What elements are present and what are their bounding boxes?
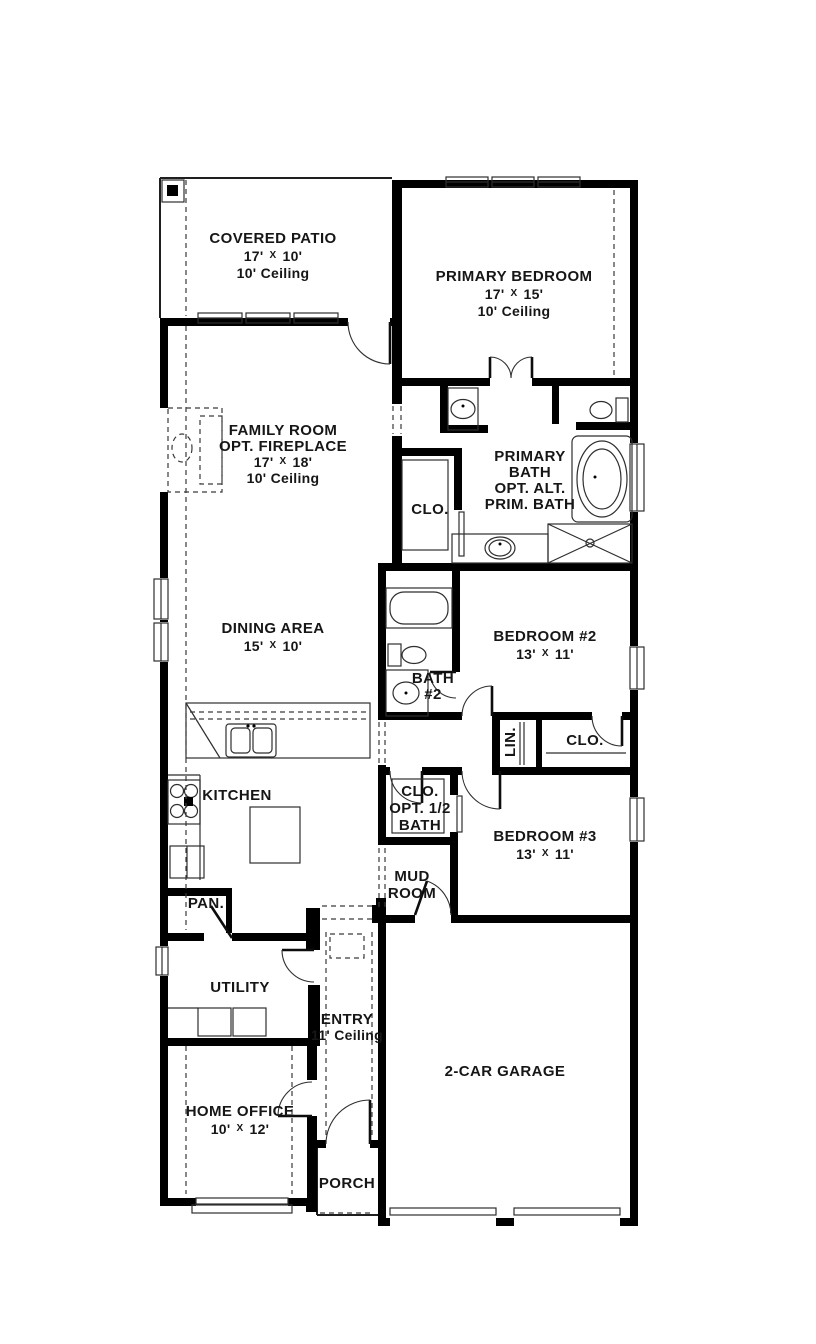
label-opt-half-bath-3: BATH xyxy=(399,817,441,834)
label-covered-patio-dims: 17'X10' xyxy=(244,248,303,264)
garage-door xyxy=(390,1208,496,1215)
patio-door-swing xyxy=(348,322,390,364)
utility-door-swing xyxy=(282,950,314,982)
label-bath2-2: #2 xyxy=(424,686,442,703)
garden-tub-icon xyxy=(572,436,632,522)
shower-icon xyxy=(548,524,632,563)
bedroom3-closet-pass-door xyxy=(457,796,462,832)
toilet-icon xyxy=(388,644,426,666)
label-primary-bath-2: BATH xyxy=(509,464,551,481)
label-home-office-dims: 10'X12' xyxy=(211,1121,270,1137)
floor-plan-canvas: COVERED PATIO 17'X10' 10' Ceiling PRIMAR… xyxy=(0,0,816,1344)
label-covered-patio: COVERED PATIO xyxy=(209,230,336,247)
bedroom2-door-swing xyxy=(462,686,492,716)
stove-icon xyxy=(168,780,200,824)
label-opt-half-bath-1: CLO. xyxy=(401,783,438,800)
patio-outline xyxy=(160,178,392,318)
label-mud-room-1: MUD xyxy=(394,868,429,885)
label-family-room-ceiling: 10' Ceiling xyxy=(247,470,320,486)
label-primary-closet: CLO. xyxy=(411,501,448,518)
label-bedroom2-dims: 13'X11' xyxy=(516,646,574,662)
kitchen-counter xyxy=(186,703,370,758)
label-kitchen: KITCHEN xyxy=(202,787,271,804)
label-primary-bedroom-ceiling: 10' Ceiling xyxy=(478,303,551,319)
label-linen: LIN. xyxy=(502,727,519,757)
refrigerator-icon xyxy=(170,846,204,878)
garage-door xyxy=(514,1208,620,1215)
bathtub-icon xyxy=(386,588,452,628)
label-garage: 2-CAR GARAGE xyxy=(445,1063,566,1080)
label-family-room-option: OPT. FIREPLACE xyxy=(219,438,347,455)
label-primary-bedroom-dims: 17'X15' xyxy=(485,286,544,302)
label-closet2: CLO. xyxy=(566,732,603,749)
label-bedroom3: BEDROOM #3 xyxy=(493,828,596,845)
label-primary-bath-3: OPT. ALT. xyxy=(494,480,565,497)
label-dining-area-dims: 15'X10' xyxy=(244,638,303,654)
label-entry-ceiling: 11' Ceiling xyxy=(311,1027,383,1043)
primary-double-door-swing xyxy=(490,357,532,378)
label-porch: PORCH xyxy=(319,1175,375,1192)
sink-icon xyxy=(452,534,548,563)
toilet-icon xyxy=(590,398,628,422)
label-family-room: FAMILY ROOM xyxy=(229,422,338,439)
closet-shelf xyxy=(520,722,524,765)
label-primary-bedroom: PRIMARY BEDROOM xyxy=(436,268,593,285)
label-family-room-dims: 17'X18' xyxy=(254,454,313,470)
sink-icon xyxy=(448,388,478,430)
label-entry: ENTRY xyxy=(321,1011,373,1028)
label-dining-area: DINING AREA xyxy=(221,620,324,637)
label-utility: UTILITY xyxy=(210,979,269,996)
label-primary-bath-4: PRIM. BATH xyxy=(485,496,575,513)
kitchen-island xyxy=(250,807,300,863)
label-bath2-1: BATH xyxy=(412,670,454,687)
bedroom3-door-swing xyxy=(462,771,500,809)
label-covered-patio-ceiling: 10' Ceiling xyxy=(237,265,310,281)
label-bedroom2: BEDROOM #2 xyxy=(493,628,596,645)
label-pantry: PAN. xyxy=(188,895,224,912)
label-home-office: HOME OFFICE xyxy=(186,1103,295,1120)
label-opt-half-bath-2: OPT. 1/2 xyxy=(389,800,451,817)
washer-dryer-icon xyxy=(168,1008,266,1036)
label-primary-bath-1: PRIMARY xyxy=(494,448,565,465)
floor-plan: COVERED PATIO 17'X10' 10' Ceiling PRIMAR… xyxy=(0,0,816,1344)
front-door-swing xyxy=(326,1100,370,1144)
label-bedroom3-dims: 13'X11' xyxy=(516,846,574,862)
label-mud-room-2: ROOM xyxy=(388,885,436,902)
kitchen-double-sink-icon xyxy=(226,724,276,757)
fireplace-opt-icon xyxy=(168,408,222,492)
